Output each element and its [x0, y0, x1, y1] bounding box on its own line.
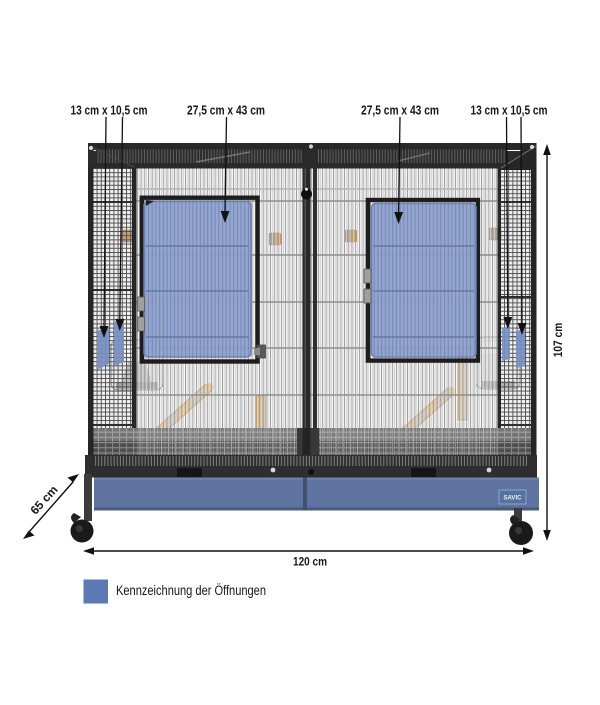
svg-text:107 cm: 107 cm — [553, 323, 565, 358]
svg-text:120 cm: 120 cm — [293, 557, 327, 569]
svg-text:Kennzeichnung der Öffnungen: Kennzeichnung der Öffnungen — [116, 583, 266, 598]
svg-text:13 cm x 10,5 cm: 13 cm x 10,5 cm — [471, 103, 548, 118]
svg-text:27,5 cm x 43 cm: 27,5 cm x 43 cm — [187, 103, 265, 118]
svg-text:13 cm x 10,5 cm: 13 cm x 10,5 cm — [71, 103, 148, 118]
svg-text:SAVIC: SAVIC — [504, 496, 523, 502]
svg-text:27,5 cm x 43 cm: 27,5 cm x 43 cm — [361, 103, 439, 118]
